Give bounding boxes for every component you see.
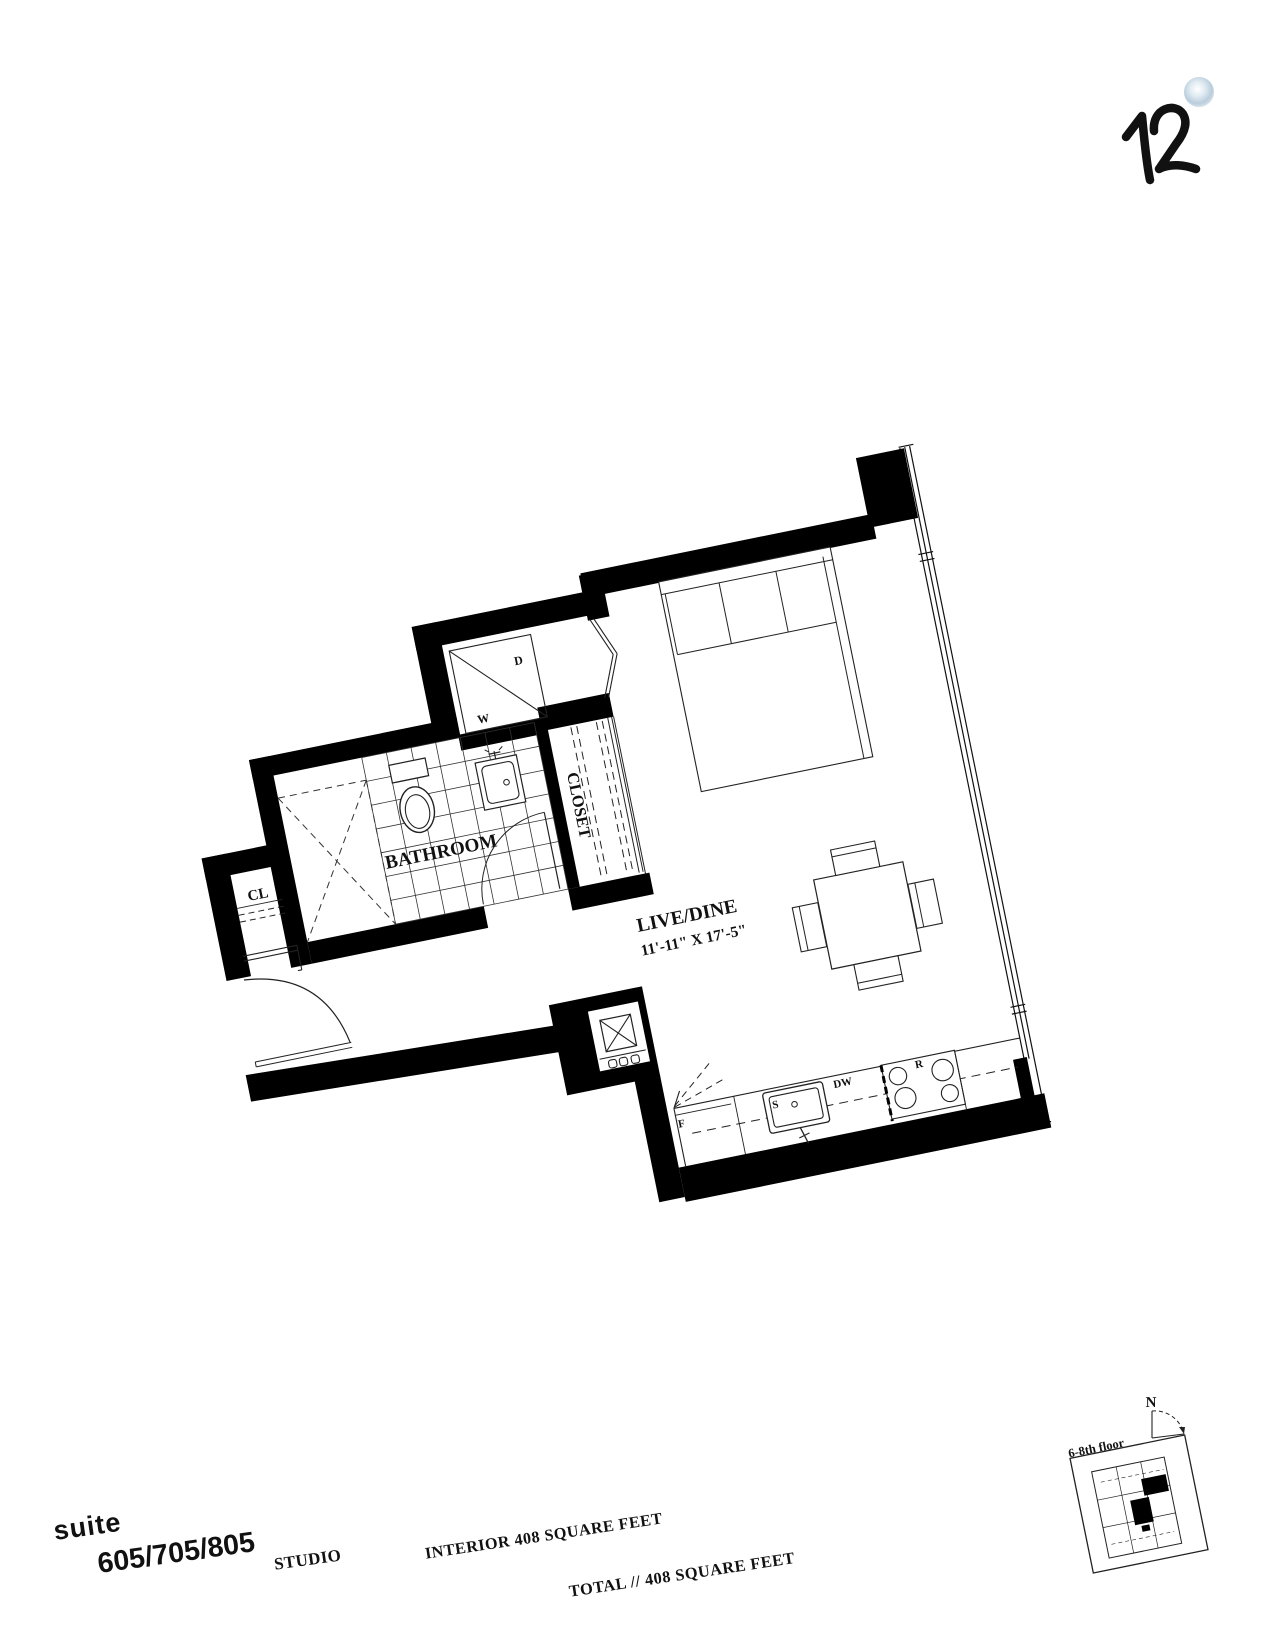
svg-text:N: N bbox=[1146, 1395, 1157, 1411]
